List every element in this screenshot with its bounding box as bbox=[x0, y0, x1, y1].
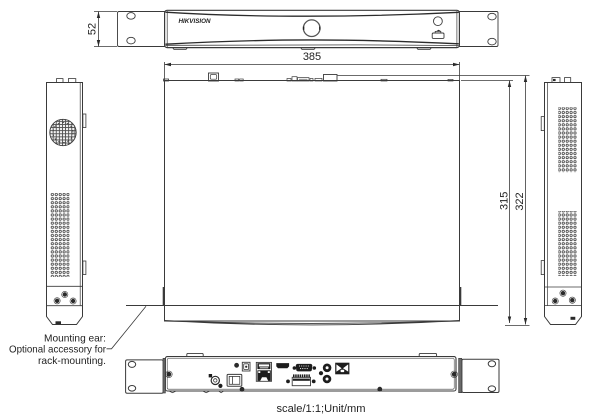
svg-text:Mounting ear:: Mounting ear: bbox=[44, 332, 106, 344]
svg-text:315: 315 bbox=[498, 192, 510, 210]
svg-text:52: 52 bbox=[87, 23, 99, 35]
svg-text:322: 322 bbox=[514, 192, 526, 210]
svg-text:HIKVISION: HIKVISION bbox=[179, 18, 211, 25]
svg-text:Optional accessory for: Optional accessory for bbox=[9, 344, 106, 356]
svg-text:rack-mounting.: rack-mounting. bbox=[38, 355, 106, 367]
svg-text:scale/1:1;Unit/mm: scale/1:1;Unit/mm bbox=[277, 403, 366, 415]
svg-text:385: 385 bbox=[303, 51, 321, 63]
